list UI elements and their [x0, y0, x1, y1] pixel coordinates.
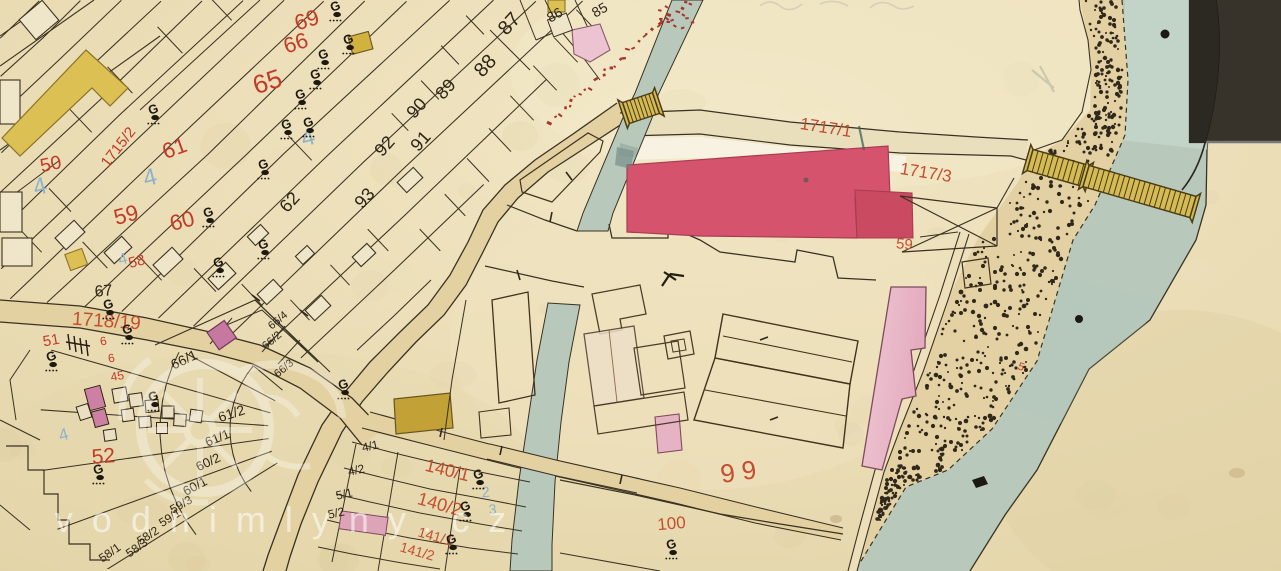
svg-text:vodnimlyny.cz: vodnimlyny.cz — [55, 499, 525, 540]
svg-text:59: 59 — [895, 235, 913, 253]
svg-text:99: 99 — [718, 453, 765, 489]
svg-text:100: 100 — [657, 513, 687, 534]
svg-text:45: 45 — [110, 368, 126, 384]
